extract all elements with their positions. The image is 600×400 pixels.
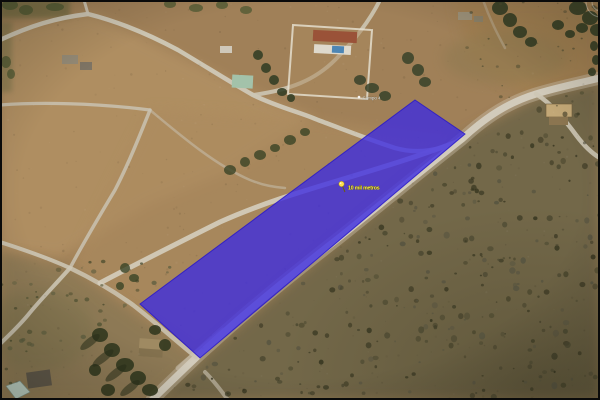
vignette [0,0,600,400]
earth-view-window: Campo 4 10 mil metros [0,0,600,400]
satellite-map-canvas[interactable]: Campo 4 10 mil metros [0,0,600,400]
